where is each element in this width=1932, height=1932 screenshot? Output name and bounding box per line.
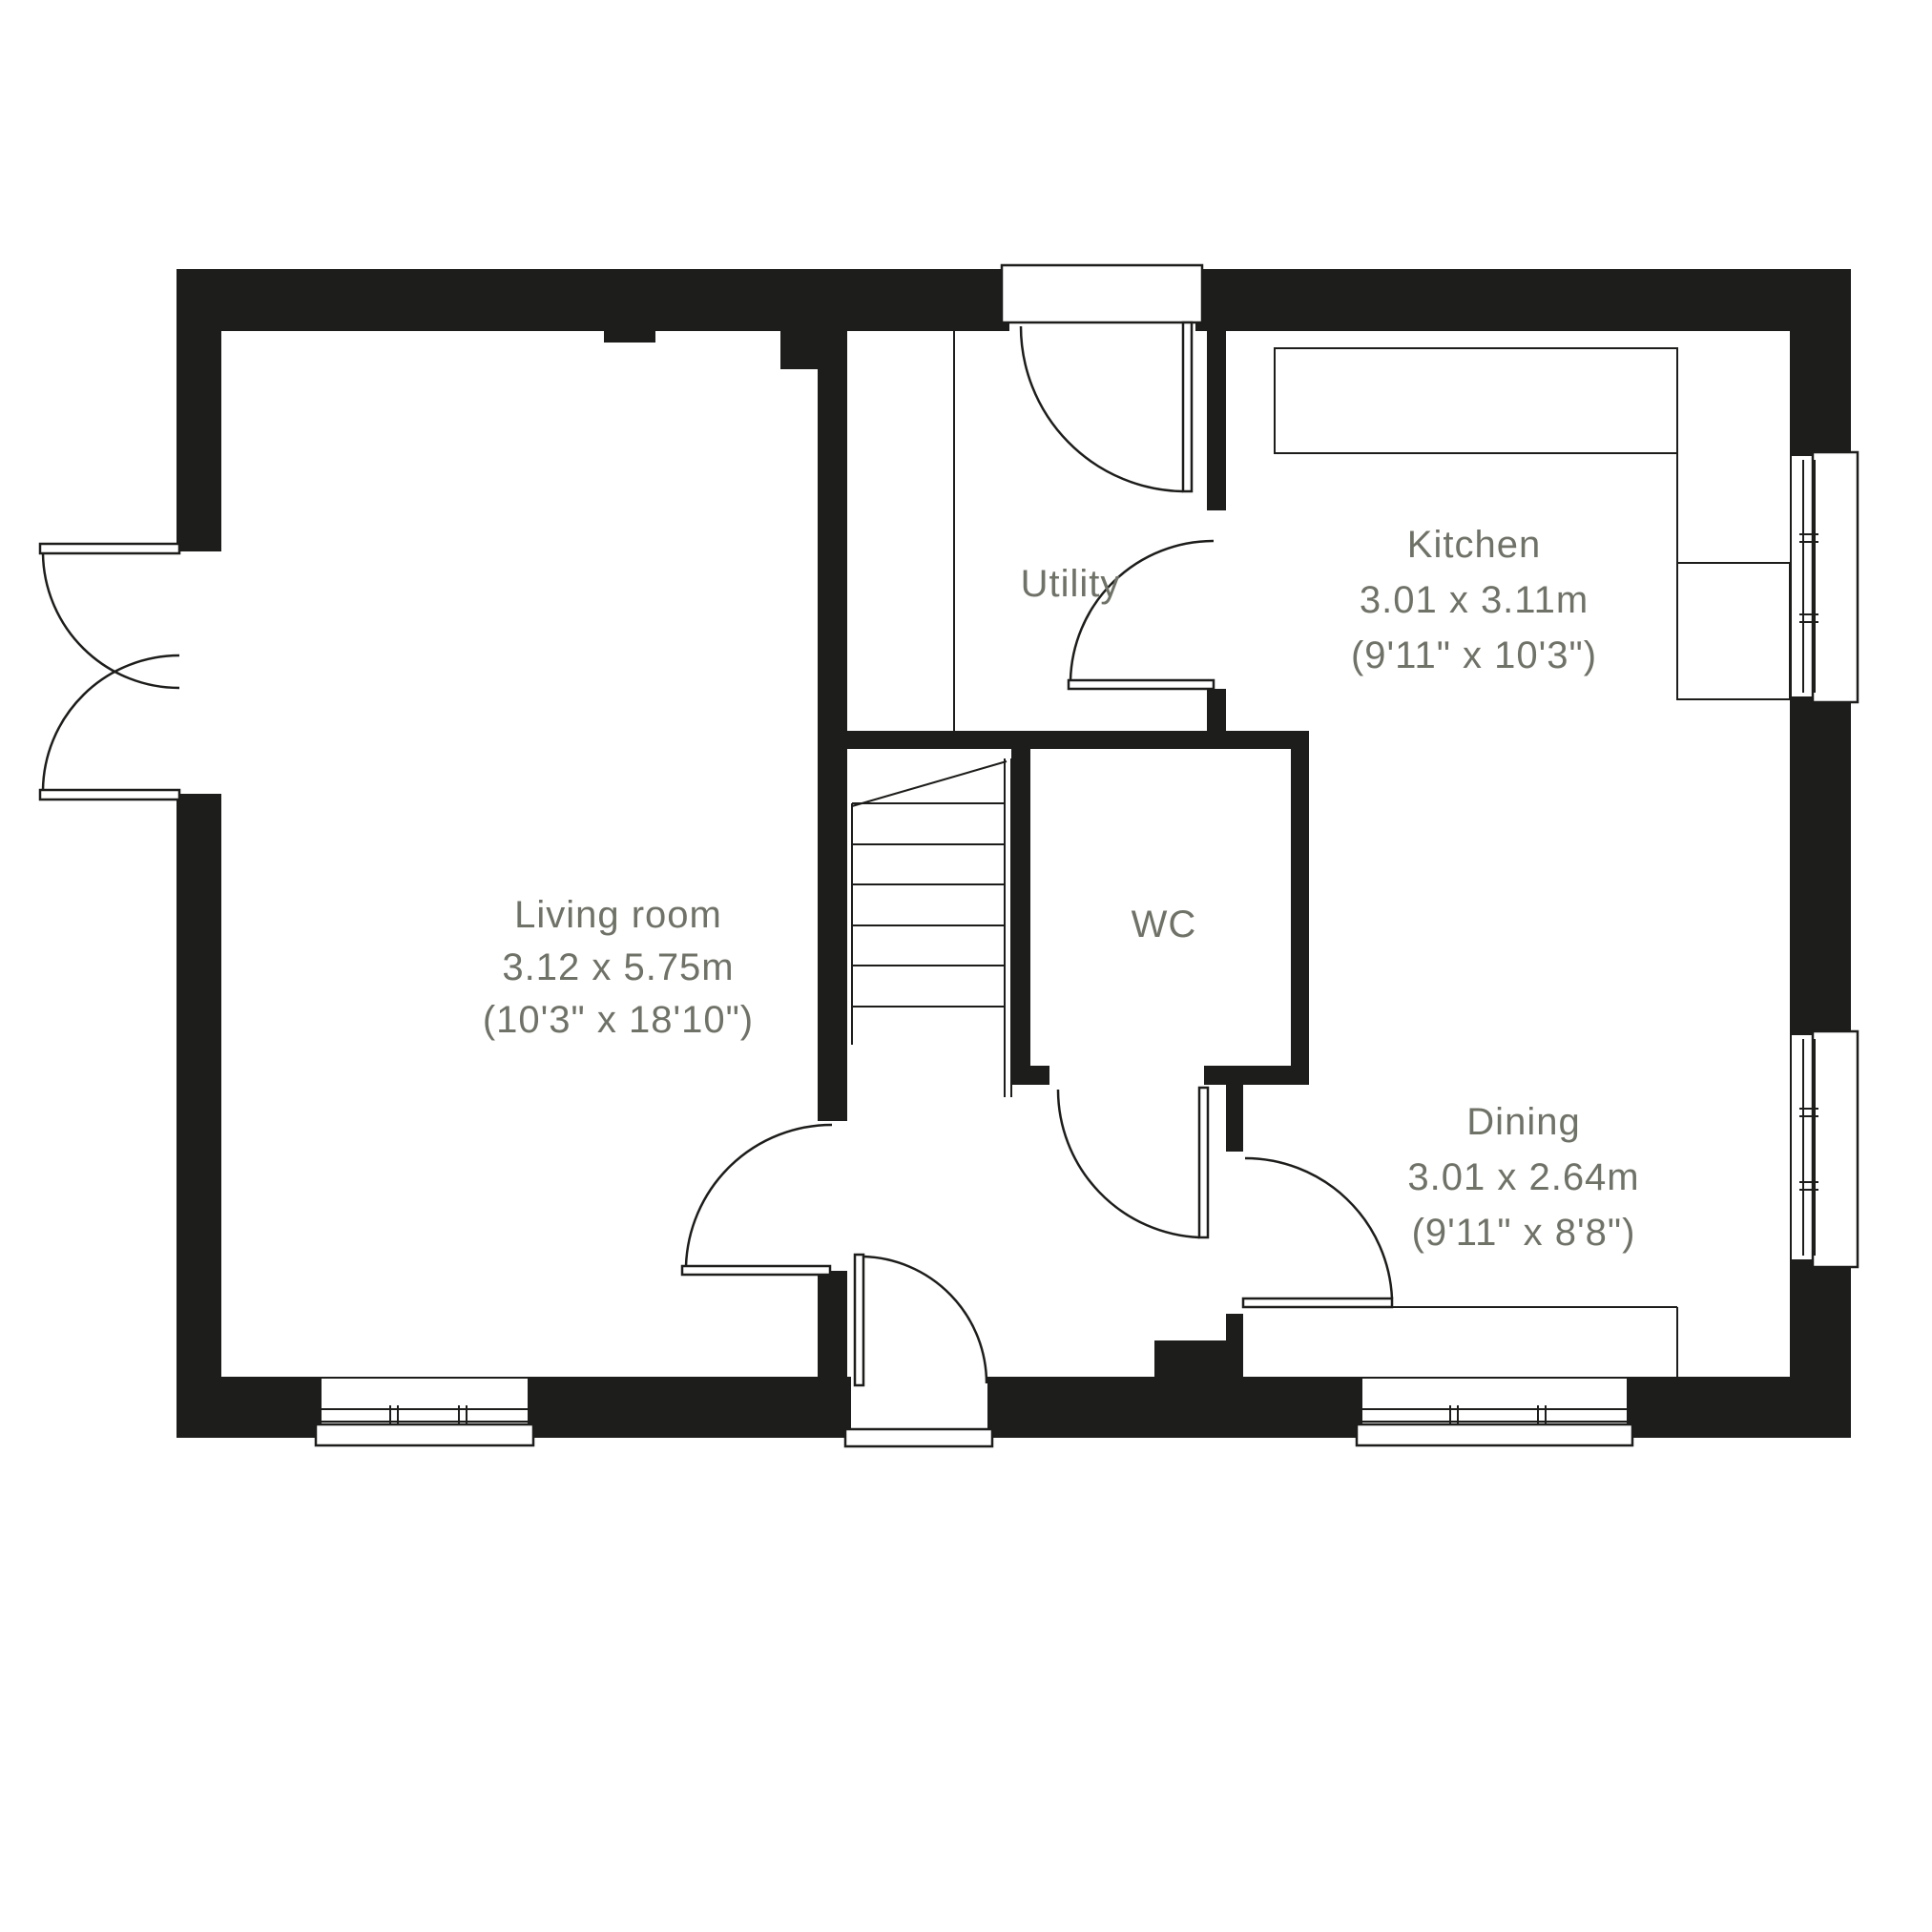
front-door (845, 1255, 992, 1446)
label-wc-name: WC (1132, 904, 1197, 945)
entrance-door (1002, 265, 1202, 491)
window-dining-right (1791, 1031, 1858, 1267)
front-door-arc (863, 1257, 987, 1383)
wall-stub-below-wc (1226, 1085, 1243, 1152)
wall-partition-utility-bottom (818, 731, 1309, 749)
wall-bottom-2 (528, 1377, 851, 1438)
wall-bottom-4 (1627, 1377, 1851, 1438)
wall-utility-kitchen-stub (1207, 689, 1226, 733)
wc-door (1058, 1088, 1208, 1237)
label-dining-name: Dining (1466, 1101, 1580, 1143)
utility-door-leaf (1069, 680, 1214, 689)
wall-pier-living-top (604, 331, 655, 343)
wall-right-upper (1790, 269, 1851, 456)
entrance-porch-frame (1002, 265, 1202, 322)
wall-wc-bottom-right (1204, 1066, 1309, 1085)
utility-door-arc (1070, 541, 1214, 680)
doors (40, 265, 1392, 1446)
label-dining-imperial: (9'11" x 8'8") (1412, 1212, 1636, 1254)
label-dining-metric: 3.01 x 2.64m (1407, 1156, 1639, 1198)
window-dining-right-sill (1813, 1031, 1858, 1267)
wall-left-lower (177, 794, 221, 1438)
wall-top-right (1195, 269, 1851, 331)
wc-door-leaf (1199, 1088, 1208, 1237)
patio-door-leaf-bottom (40, 790, 179, 800)
floor-plan-drawing: Living room 3.12 x 5.75m (10'3" x 18'10"… (0, 0, 1932, 1932)
wall-living-separator-lower (818, 1271, 847, 1377)
entrance-door-arc (1021, 326, 1183, 491)
patio-double-door (40, 544, 179, 800)
wall-bottom-1 (177, 1377, 322, 1438)
floor-plan-page: Living room 3.12 x 5.75m (10'3" x 18'10"… (0, 0, 1932, 1932)
label-living-imperial: (10'3" x 18'10") (483, 999, 754, 1041)
wall-top-left (177, 269, 1009, 331)
label-kitchen-imperial: (9'11" x 10'3") (1351, 634, 1597, 676)
wall-wc-right (1291, 731, 1309, 1085)
room-labels: Living room 3.12 x 5.75m (10'3" x 18'10"… (483, 524, 1640, 1254)
stairs-diagonal (852, 761, 1007, 806)
patio-door-arc-bottom (43, 655, 179, 790)
dining-door-leaf (1243, 1298, 1392, 1307)
wall-wc-left (1011, 731, 1030, 1085)
front-door-leaf (855, 1255, 863, 1385)
kitchen-counter-top (1275, 348, 1677, 453)
wall-bottom-3 (987, 1377, 1362, 1438)
label-living-name: Living room (514, 894, 722, 936)
window-dining-bottom (1357, 1307, 1677, 1445)
wall-right-middle (1790, 696, 1851, 1035)
label-kitchen-metric: 3.01 x 3.11m (1360, 579, 1589, 621)
dining-door (1243, 1158, 1392, 1307)
label-utility-name: Utility (1021, 563, 1121, 605)
entrance-door-leaf (1183, 322, 1192, 491)
wc-door-arc (1058, 1090, 1199, 1237)
stairs (852, 758, 1011, 1097)
living-room-door (682, 1125, 832, 1275)
label-kitchen-name: Kitchen (1407, 524, 1541, 566)
kitchen-counter-right (1677, 563, 1790, 699)
window-dining-bottom-sill (1357, 1424, 1632, 1445)
living-door-leaf (682, 1266, 830, 1275)
wall-step-dining (1154, 1340, 1243, 1379)
window-kitchen (1791, 452, 1858, 702)
patio-door-arc-top (43, 553, 179, 688)
wall-living-separator-footing (780, 331, 847, 369)
wall-left-upper (177, 269, 221, 551)
dining-door-arc (1245, 1158, 1392, 1298)
window-kitchen-sill (1813, 452, 1858, 702)
label-living-metric: 3.12 x 5.75m (502, 946, 734, 988)
front-door-threshold (845, 1429, 992, 1446)
wall-wc-bottom-left (1011, 1066, 1049, 1085)
window-living (316, 1378, 533, 1445)
wall-stub-dining-door (1226, 1314, 1243, 1342)
wall-living-separator-upper (818, 331, 847, 1121)
living-door-arc (686, 1125, 832, 1266)
patio-door-leaf-top (40, 544, 179, 553)
window-living-sill (316, 1424, 533, 1445)
wall-utility-kitchen (1207, 331, 1226, 510)
